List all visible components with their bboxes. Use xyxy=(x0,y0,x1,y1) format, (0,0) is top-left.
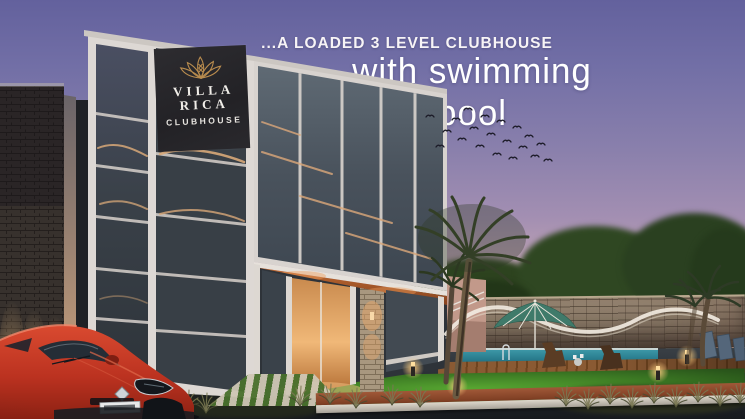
sign-subtitle: CLUBHOUSE xyxy=(163,114,242,127)
villa-rica-sign: VILLA RICA CLUBHOUSE xyxy=(154,45,250,152)
stone-pillar xyxy=(360,288,384,402)
sign-name-line2: RICA xyxy=(175,97,229,113)
gold-lotus-icon xyxy=(178,53,223,85)
glass-wing-face xyxy=(254,60,447,291)
compound-wall xyxy=(447,276,486,352)
red-car xyxy=(0,318,204,419)
clubhouse-render: ...A LOADED 3 LEVEL CLUBHOUSE with swimm… xyxy=(0,0,745,419)
